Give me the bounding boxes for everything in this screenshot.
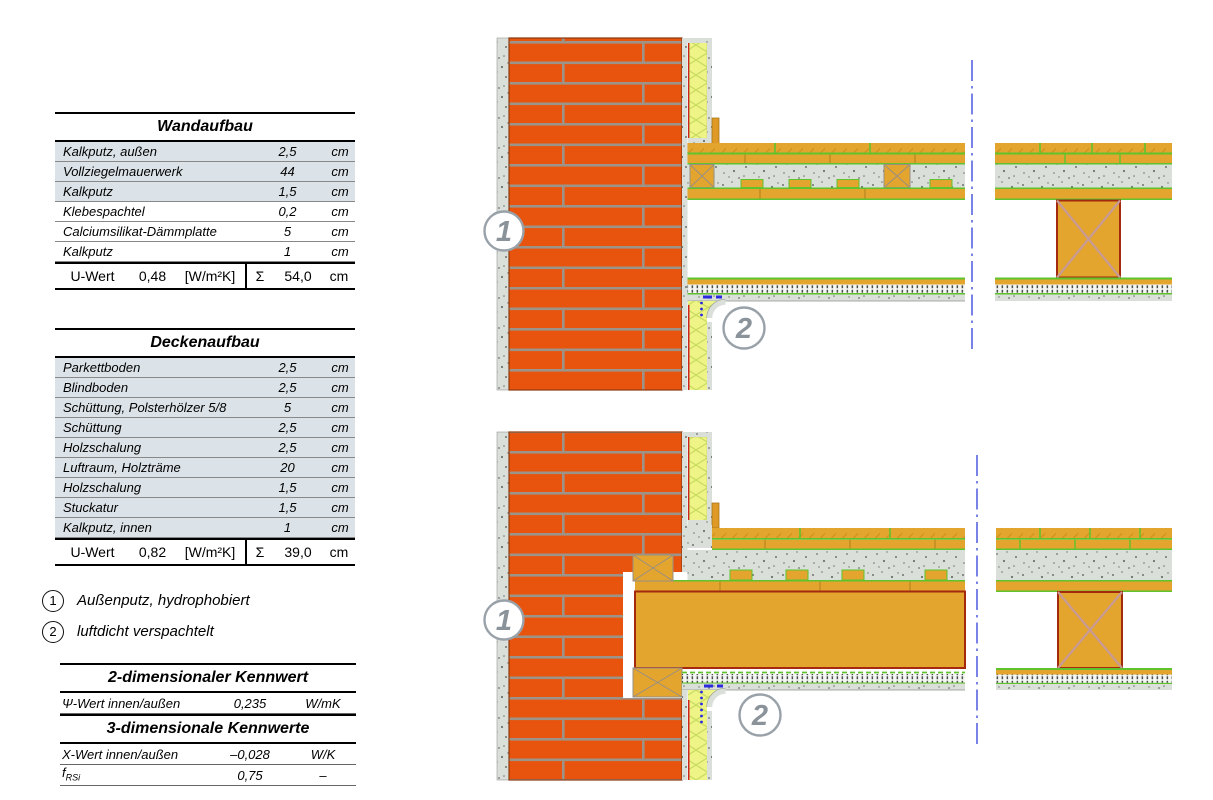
floor-assembly bbox=[688, 143, 966, 200]
lower-insulation bbox=[688, 299, 726, 390]
layer-name: Parkettboden bbox=[55, 358, 250, 377]
deckenaufbau-summary: U-Wert 0,82 [W/m²K] Σ 39,0 cm bbox=[55, 538, 355, 566]
ceiling-assembly bbox=[682, 673, 965, 691]
layer-unit: cm bbox=[325, 398, 355, 417]
total-value: 54,0 bbox=[273, 264, 323, 288]
layer-name: Kalkputz, innen bbox=[55, 518, 250, 537]
table-row: Ψ-Wert innen/außen0,235W/mK bbox=[60, 693, 356, 714]
kennwerte-table: 2-dimensionaler Kennwert Ψ-Wert innen/au… bbox=[60, 663, 356, 786]
layer-name: Vollziegelmauerwerk bbox=[55, 162, 250, 181]
schuettung-layer bbox=[688, 550, 966, 580]
layer-value: 0,235 bbox=[210, 694, 290, 713]
table-row: Kalkputz, innen1cm bbox=[55, 518, 355, 538]
layer-name: Kalkputz bbox=[55, 242, 250, 261]
layer-value: 1 bbox=[250, 242, 325, 261]
layer-value: 1,5 bbox=[250, 498, 325, 517]
layer-value: 2,5 bbox=[250, 142, 325, 161]
stuckatur-layer bbox=[688, 285, 966, 294]
layer-value: 20 bbox=[250, 458, 325, 477]
timber-joist bbox=[1057, 201, 1120, 278]
callout-1-number: 1 bbox=[496, 605, 512, 637]
table-row: Calciumsilikat-Dämmplatte5cm bbox=[55, 222, 355, 242]
detail-top: 1 2 bbox=[485, 38, 1173, 390]
layer-name: Kalkputz bbox=[55, 182, 250, 201]
holzschalung-layer bbox=[688, 189, 966, 199]
table-row: Parkettboden2,5cm bbox=[55, 358, 355, 378]
layer-unit: cm bbox=[325, 162, 355, 181]
table-row: Kalkputz1cm bbox=[55, 242, 355, 262]
detail-bottom: 1 2 bbox=[485, 432, 1173, 780]
layer-value: –0,028 bbox=[210, 745, 290, 764]
table-row: Blindboden2,5cm bbox=[55, 378, 355, 398]
callout-2-number: 2 bbox=[735, 313, 752, 345]
layer-name: Holzschalung bbox=[55, 438, 250, 457]
wandaufbau-title: Wandaufbau bbox=[55, 112, 355, 142]
schuettung-layer bbox=[688, 165, 966, 188]
legend-text: luftdicht verspachtelt bbox=[77, 622, 214, 642]
skirting-board bbox=[712, 503, 719, 528]
callout-1: 1 bbox=[485, 212, 524, 251]
layer-value: 44 bbox=[250, 162, 325, 181]
u-wert-unit: [W/m²K] bbox=[175, 264, 245, 288]
layer-unit: cm bbox=[325, 458, 355, 477]
legend-number-circle: 1 bbox=[42, 590, 64, 612]
total-value: 39,0 bbox=[273, 540, 323, 564]
insulation-board bbox=[690, 437, 708, 523]
kennwert-3d-rows: Χ-Wert innen/außen–0,028W/KfRSi0,75– bbox=[60, 744, 356, 786]
wandaufbau-summary: U-Wert 0,48 [W/m²K] Σ 54,0 cm bbox=[55, 262, 355, 290]
floor-fragment bbox=[995, 143, 1172, 301]
table-row: fRSi0,75– bbox=[60, 765, 356, 786]
layer-value: 2,5 bbox=[250, 358, 325, 377]
table-row: Kalkputz1,5cm bbox=[55, 182, 355, 202]
room-plaster-layer bbox=[707, 38, 712, 143]
layer-unit: W/K bbox=[290, 745, 356, 764]
inner-plaster-layer bbox=[682, 432, 688, 572]
table-row: Luftraum, Holzträme20cm bbox=[55, 458, 355, 478]
layer-value: 5 bbox=[250, 222, 325, 241]
layer-unit: cm bbox=[325, 142, 355, 161]
plaster-cap bbox=[682, 432, 712, 437]
layer-name: Blindboden bbox=[55, 378, 250, 397]
u-wert-value: 0,48 bbox=[130, 264, 175, 288]
blindboden-layer bbox=[688, 155, 966, 164]
ceiling-assembly bbox=[688, 278, 966, 302]
layer-value: 2,5 bbox=[250, 378, 325, 397]
insulation-board bbox=[690, 42, 708, 141]
u-wert-value: 0,82 bbox=[130, 540, 175, 564]
layer-unit: cm bbox=[325, 438, 355, 457]
layer-value: 1,5 bbox=[250, 182, 325, 201]
layer-unit: cm bbox=[325, 222, 355, 241]
u-wert-label: U-Wert bbox=[55, 540, 130, 564]
callout-1-number: 1 bbox=[496, 216, 512, 248]
total-unit: cm bbox=[323, 264, 355, 288]
timber-beam bbox=[635, 592, 965, 669]
legend-number-circle: 2 bbox=[42, 621, 64, 643]
table-row: Holzschalung2,5cm bbox=[55, 438, 355, 458]
table-row: Vollziegelmauerwerk44cm bbox=[55, 162, 355, 182]
table-row: Schüttung2,5cm bbox=[55, 418, 355, 438]
layer-unit: cm bbox=[325, 202, 355, 221]
callout-2-number: 2 bbox=[751, 700, 768, 732]
room-plaster-layer bbox=[707, 432, 712, 528]
layer-value: 5 bbox=[250, 398, 325, 417]
callout-2: 2 bbox=[740, 695, 781, 736]
kalkputz-innen-layer bbox=[688, 295, 966, 302]
parquet-layer bbox=[688, 143, 966, 153]
layer-value: 0,75 bbox=[210, 766, 290, 785]
legend-item: 2luftdicht verspachtelt bbox=[42, 621, 214, 643]
kennwert-2d-rows: Ψ-Wert innen/außen0,235W/mK bbox=[60, 693, 356, 714]
deckenaufbau-rows: Parkettboden2,5cmBlindboden2,5cmSchüttun… bbox=[55, 358, 355, 538]
floor-fragment bbox=[996, 528, 1172, 690]
sigma-symbol: Σ bbox=[245, 264, 273, 288]
timber-joist bbox=[1058, 592, 1122, 668]
u-wert-label: U-Wert bbox=[55, 264, 130, 288]
layer-value: 2,5 bbox=[250, 418, 325, 437]
layer-value: 2,5 bbox=[250, 438, 325, 457]
kennwert-3d-title: 3-dimensionale Kennwerte bbox=[60, 714, 356, 744]
brick-wall bbox=[509, 38, 682, 390]
u-wert-unit: [W/m²K] bbox=[175, 540, 245, 564]
kennwert-2d-title: 2-dimensionaler Kennwert bbox=[60, 663, 356, 693]
layer-name: Schüttung, Polsterhölzer 5/8 bbox=[55, 398, 250, 417]
table-row: Stuckatur1,5cm bbox=[55, 498, 355, 518]
legend-item: 1Außenputz, hydrophobiert bbox=[42, 590, 250, 612]
layer-name: Ψ-Wert innen/außen bbox=[60, 694, 210, 713]
layer-name: Stuckatur bbox=[55, 498, 250, 517]
layer-name: Klebespachtel bbox=[55, 202, 250, 221]
blindboden-layer bbox=[712, 540, 965, 549]
polsterholz-block bbox=[633, 555, 673, 581]
layer-unit: – bbox=[290, 766, 356, 785]
legend-text: Außenputz, hydrophobiert bbox=[77, 591, 250, 611]
layer-unit: cm bbox=[325, 418, 355, 437]
total-unit: cm bbox=[323, 540, 355, 564]
skirting-board bbox=[712, 118, 719, 144]
construction-detail-drawings: 1 2 bbox=[440, 0, 1213, 800]
inner-plaster-layer bbox=[682, 38, 688, 390]
table-row: Kalkputz, außen2,5cm bbox=[55, 142, 355, 162]
callout-2: 2 bbox=[724, 308, 765, 349]
layer-name: Calciumsilikat-Dämmplatte bbox=[55, 222, 250, 241]
layer-unit: cm bbox=[325, 182, 355, 201]
layer-unit: cm bbox=[325, 242, 355, 261]
table-row: Schüttung, Polsterhölzer 5/85cm bbox=[55, 398, 355, 418]
plaster-cap bbox=[688, 138, 712, 143]
layer-unit: cm bbox=[325, 478, 355, 497]
sigma-symbol: Σ bbox=[245, 540, 273, 564]
wandaufbau-rows: Kalkputz, außen2,5cmVollziegelmauerwerk4… bbox=[55, 142, 355, 262]
deckenaufbau-table: Deckenaufbau Parkettboden2,5cmBlindboden… bbox=[55, 328, 355, 566]
layer-name: Luftraum, Holzträme bbox=[55, 458, 250, 477]
beam-support-block bbox=[633, 668, 682, 697]
layer-value: 0,2 bbox=[250, 202, 325, 221]
plaster-cap bbox=[688, 520, 712, 525]
callout-1: 1 bbox=[485, 601, 524, 640]
stuckatur-layer bbox=[682, 674, 965, 683]
layer-value: 1 bbox=[250, 518, 325, 537]
layer-unit: cm bbox=[325, 358, 355, 377]
plaster-infill bbox=[688, 525, 713, 548]
table-row: Klebespachtel0,2cm bbox=[55, 202, 355, 222]
layer-name: fRSi bbox=[60, 763, 210, 788]
layer-unit: W/mK bbox=[290, 694, 356, 713]
layer-unit: cm bbox=[325, 378, 355, 397]
wandaufbau-table: Wandaufbau Kalkputz, außen2,5cmVollziege… bbox=[55, 112, 355, 290]
table-row: Holzschalung1,5cm bbox=[55, 478, 355, 498]
layer-name: Holzschalung bbox=[55, 478, 250, 497]
deckenaufbau-title: Deckenaufbau bbox=[55, 328, 355, 358]
layer-name: Schüttung bbox=[55, 418, 250, 437]
plaster-cap bbox=[682, 38, 712, 43]
layer-name: Χ-Wert innen/außen bbox=[60, 745, 210, 764]
parquet-layer bbox=[712, 528, 965, 538]
layer-value: 1,5 bbox=[250, 478, 325, 497]
holzschalung-layer bbox=[635, 582, 965, 591]
layer-unit: cm bbox=[325, 518, 355, 537]
layer-name: Kalkputz, außen bbox=[55, 142, 250, 161]
layer-unit: cm bbox=[325, 498, 355, 517]
ceiling-holzschalung bbox=[688, 280, 966, 285]
lower-insulation bbox=[682, 688, 726, 780]
